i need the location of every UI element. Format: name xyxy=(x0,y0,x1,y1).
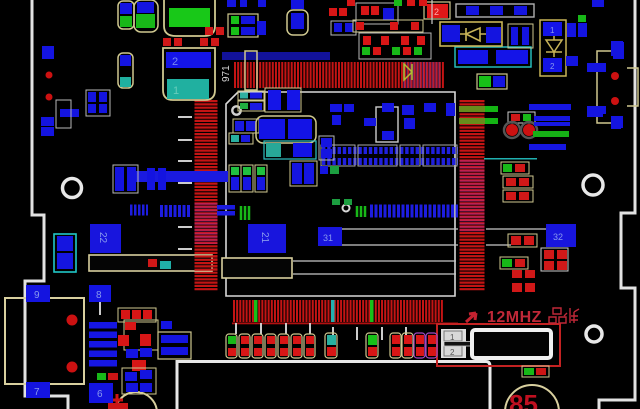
svg-text:85: 85 xyxy=(509,389,538,409)
svg-text:12MHZ: 12MHZ xyxy=(487,309,542,326)
svg-text:2: 2 xyxy=(434,7,439,17)
svg-text:6: 6 xyxy=(97,389,103,400)
svg-text:7: 7 xyxy=(34,387,40,398)
svg-text:22: 22 xyxy=(97,232,108,244)
svg-text:8: 8 xyxy=(96,290,102,301)
svg-text:21: 21 xyxy=(259,232,270,244)
svg-text:9: 9 xyxy=(34,290,40,301)
svg-text:31: 31 xyxy=(323,233,333,243)
svg-text:971: 971 xyxy=(221,65,232,82)
svg-text:1: 1 xyxy=(550,26,555,35)
svg-text:32: 32 xyxy=(553,232,563,242)
svg-text:2: 2 xyxy=(172,56,178,68)
svg-text:1: 1 xyxy=(173,85,179,97)
svg-text:2: 2 xyxy=(550,62,555,71)
svg-text:2: 2 xyxy=(450,348,455,357)
svg-text:1: 1 xyxy=(450,333,455,342)
